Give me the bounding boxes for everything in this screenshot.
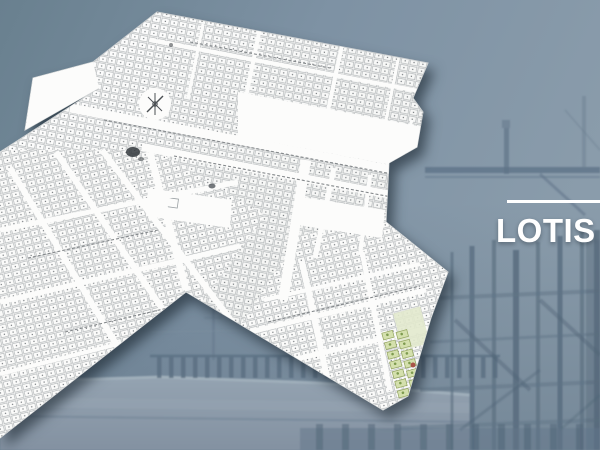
red-map-mark bbox=[411, 363, 416, 368]
map-content bbox=[0, 0, 600, 450]
hero-banner: LOTIS bbox=[0, 0, 600, 450]
lotissement-parcel-plan-map bbox=[0, 0, 600, 450]
